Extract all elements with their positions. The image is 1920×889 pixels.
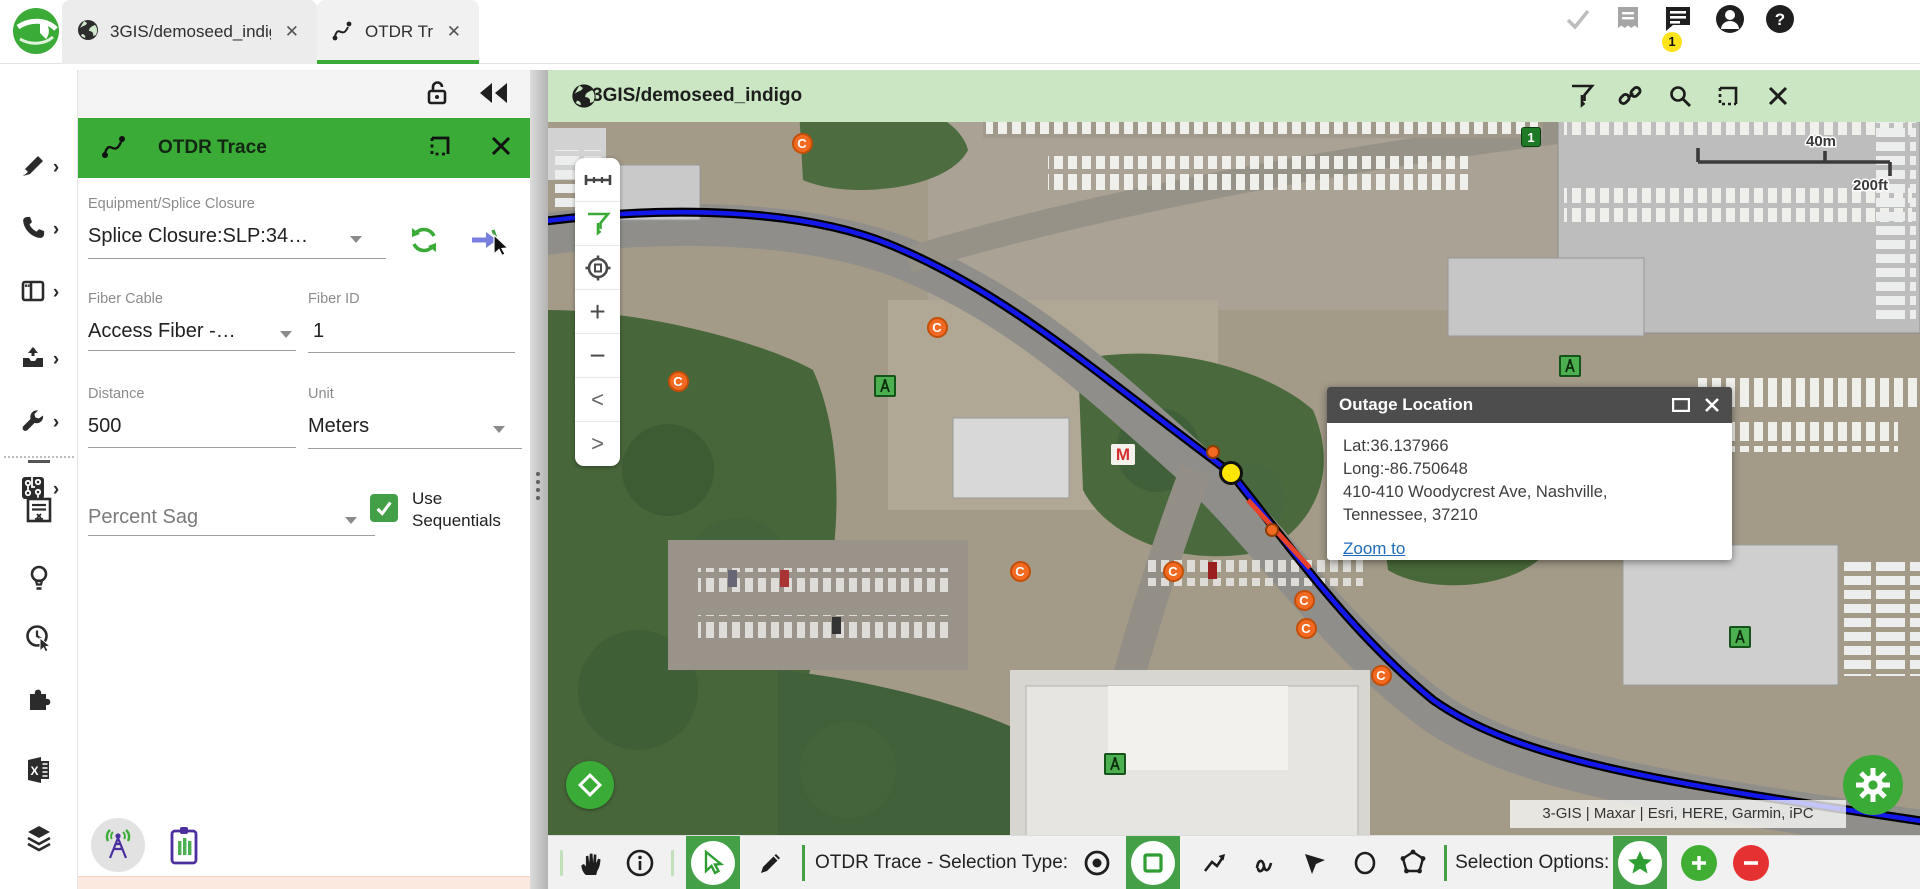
outage-location-popup: Outage Location Lat:36.137966 Long:-86.7… bbox=[1327, 387, 1732, 560]
layout-panel-icon bbox=[19, 277, 47, 310]
map-toolbar: OTDR Trace - Selection Type: bbox=[548, 835, 1920, 889]
detach-panel-icon[interactable] bbox=[426, 132, 454, 165]
field-underline bbox=[88, 258, 386, 259]
field-underline bbox=[88, 535, 375, 536]
clipboard-icon bbox=[166, 823, 202, 867]
chevron-right-icon: › bbox=[53, 349, 59, 371]
dropdown-arrow-icon[interactable] bbox=[345, 517, 357, 524]
rectangle-icon bbox=[1140, 850, 1166, 876]
fiber-cable-label: Fiber Cable bbox=[88, 291, 163, 307]
sidebar-scroll-indicator bbox=[28, 460, 50, 463]
sidebar-item-reports[interactable] bbox=[0, 490, 78, 534]
antenna-icon bbox=[98, 825, 138, 865]
device-marker[interactable] bbox=[1104, 753, 1126, 775]
app-logo-icon[interactable] bbox=[10, 5, 62, 57]
cursor-arrow-icon bbox=[700, 850, 726, 876]
pencil-icon bbox=[19, 152, 47, 185]
pan-tool-button[interactable] bbox=[575, 846, 609, 880]
scale-imperial-label: 200ft bbox=[1853, 177, 1888, 194]
toolbar-tick bbox=[560, 850, 563, 876]
panel-top-bar bbox=[78, 70, 530, 118]
scale-bar: 40m 200ft bbox=[1688, 132, 1908, 202]
polyline-icon bbox=[1201, 849, 1229, 877]
popup-lat: Lat:36.137966 bbox=[1343, 435, 1716, 458]
svg-text:?: ? bbox=[1775, 10, 1785, 29]
dropdown-arrow-icon[interactable] bbox=[350, 236, 362, 243]
panel-title: OTDR Trace bbox=[158, 137, 267, 159]
field-underline bbox=[88, 350, 296, 351]
selection-options-label: Selection Options: bbox=[1455, 852, 1609, 874]
tool-sidebar: › › › › › › bbox=[0, 70, 78, 889]
puzzle-icon bbox=[25, 686, 53, 719]
locate-button[interactable] bbox=[566, 761, 614, 809]
lasso-icon bbox=[1301, 849, 1329, 877]
receipt-log-icon[interactable] bbox=[1611, 2, 1645, 36]
selection-type-label: OTDR Trace - Selection Type: bbox=[815, 852, 1068, 874]
circle-selection-button[interactable] bbox=[1348, 846, 1382, 880]
panel-footer-strip bbox=[78, 876, 530, 889]
maximize-icon[interactable] bbox=[1672, 398, 1690, 412]
next-extent-button[interactable]: > bbox=[575, 422, 620, 466]
zoom-in-button[interactable]: + bbox=[575, 290, 620, 334]
clock-cursor-icon bbox=[24, 623, 54, 658]
use-sequentials-checkbox[interactable] bbox=[370, 494, 398, 522]
circle-icon bbox=[1351, 849, 1379, 877]
closure-marker[interactable]: C bbox=[1163, 561, 1184, 582]
closure-marker[interactable]: C bbox=[792, 133, 813, 154]
fiber-cable-select[interactable]: Access Fiber -… bbox=[88, 320, 236, 343]
map-view[interactable]: 40m 200ft CCCCCCCCM1 3GIS/demoseed_indig… bbox=[548, 70, 1920, 889]
popup-address-line1: 410-410 Woodycrest Ave, Nashville, bbox=[1343, 481, 1716, 504]
lasso-selection-button[interactable] bbox=[1298, 846, 1332, 880]
map-tool-column: + − < > bbox=[575, 158, 620, 466]
map-attribution: 3-GIS | Maxar | Esri, HERE, Garmin, iPC bbox=[1510, 800, 1846, 828]
excel-icon: X bbox=[24, 755, 54, 790]
antenna-tool-button[interactable] bbox=[91, 818, 145, 872]
globe-icon bbox=[570, 82, 598, 115]
popup-header[interactable]: Outage Location bbox=[1327, 387, 1732, 423]
sidebar-item-tools[interactable]: › bbox=[0, 401, 78, 445]
panel-header: OTDR Trace bbox=[78, 118, 530, 178]
device-marker[interactable] bbox=[1559, 355, 1581, 377]
close-panel-icon[interactable] bbox=[488, 133, 514, 164]
closure-marker[interactable]: C bbox=[1010, 561, 1031, 582]
monument-marker[interactable]: M bbox=[1111, 444, 1135, 465]
star-icon bbox=[1626, 849, 1654, 877]
globe-icon bbox=[76, 18, 100, 47]
sidebar-divider bbox=[4, 456, 74, 458]
closure-marker[interactable]: C bbox=[1296, 618, 1317, 639]
sidebar-item-export[interactable]: › bbox=[0, 338, 78, 382]
target-icon bbox=[577, 772, 603, 798]
sidebar-item-ideas[interactable] bbox=[0, 558, 78, 602]
upload-tray-icon bbox=[19, 344, 47, 377]
use-sequentials-label-line2: Sequentials bbox=[412, 511, 501, 531]
plus-icon bbox=[1689, 853, 1709, 873]
sidebar-item-plugins[interactable] bbox=[0, 680, 78, 724]
link-icon[interactable] bbox=[1614, 80, 1646, 112]
zoom-out-button[interactable]: − bbox=[575, 334, 620, 378]
tab-label: OTDR Trace bbox=[365, 22, 433, 42]
sidebar-item-layers[interactable] bbox=[0, 818, 78, 862]
detach-map-icon[interactable] bbox=[1712, 80, 1744, 112]
close-popup-icon[interactable] bbox=[1704, 397, 1720, 413]
device-marker[interactable] bbox=[1729, 626, 1751, 648]
map-settings-button[interactable] bbox=[1843, 755, 1903, 815]
fiber-point-marker[interactable] bbox=[1206, 445, 1220, 459]
top-bar: 3GIS/demoseed_indigo ✕ OTDR Trace ✕ 1 bbox=[0, 0, 1920, 70]
pencil-icon bbox=[757, 849, 785, 877]
close-map-icon[interactable] bbox=[1762, 80, 1794, 112]
otdr-trace-panel: OTDR Trace Equipment/Splice Closure Spli… bbox=[78, 70, 530, 889]
popup-address-line2: Tennessee, 37210 bbox=[1343, 504, 1716, 527]
sidebar-item-excel-export[interactable]: X bbox=[0, 750, 78, 794]
map-header: 3GIS/demoseed_indigo bbox=[548, 70, 1920, 122]
notification-badge: 1 bbox=[1662, 32, 1682, 52]
previous-extent-button[interactable]: < bbox=[575, 378, 620, 422]
unit-select[interactable]: Meters bbox=[308, 415, 369, 438]
distance-input[interactable]: 500 bbox=[88, 415, 121, 438]
fiber-id-input[interactable]: 1 bbox=[313, 320, 324, 343]
closure-marker[interactable]: C bbox=[927, 317, 948, 338]
radio-point-icon bbox=[1082, 848, 1112, 878]
report-document-icon bbox=[24, 495, 54, 530]
dropdown-arrow-icon[interactable] bbox=[493, 426, 505, 433]
map-title: 3GIS/demoseed_indigo bbox=[592, 85, 802, 107]
panel-splitter[interactable] bbox=[530, 70, 548, 889]
validate-check-icon[interactable] bbox=[1561, 2, 1595, 36]
chevron-right-icon: › bbox=[53, 157, 59, 179]
field-underline bbox=[308, 352, 515, 353]
info-icon bbox=[625, 848, 655, 878]
account-icon[interactable] bbox=[1713, 2, 1747, 36]
edit-tool-button[interactable] bbox=[754, 846, 788, 880]
rectangle-selection-button-active[interactable] bbox=[1126, 836, 1180, 889]
messages-icon[interactable] bbox=[1661, 2, 1695, 36]
chevron-right-icon: › bbox=[53, 412, 59, 434]
toolbar-tick bbox=[671, 850, 674, 876]
closure-marker[interactable]: C bbox=[1294, 590, 1315, 611]
lightbulb-icon bbox=[25, 564, 53, 597]
chevron-right-icon: › bbox=[53, 219, 59, 241]
sidebar-item-history[interactable] bbox=[0, 618, 78, 662]
point-selection-button[interactable] bbox=[1080, 846, 1114, 880]
refresh-icon[interactable] bbox=[406, 222, 442, 263]
tab-close-icon[interactable]: ✕ bbox=[281, 20, 303, 44]
measure-button[interactable] bbox=[575, 158, 620, 202]
scale-metric-label: 40m bbox=[1806, 133, 1836, 150]
splitter-handle[interactable] bbox=[536, 468, 540, 504]
sidebar-item-layout[interactable]: › bbox=[0, 271, 78, 315]
collapse-panel-icon[interactable] bbox=[478, 81, 510, 110]
use-sequentials-label-line1: Use bbox=[412, 489, 442, 509]
check-icon bbox=[373, 497, 395, 519]
map-filter-button[interactable] bbox=[575, 202, 620, 246]
sidebar-item-call[interactable]: › bbox=[0, 208, 78, 252]
gear-icon bbox=[1854, 766, 1892, 804]
closure-marker[interactable]: C bbox=[668, 371, 689, 392]
minus-icon bbox=[1741, 853, 1761, 873]
tab-map-view[interactable]: 3GIS/demoseed_indigo ✕ bbox=[62, 0, 317, 64]
equipment-select[interactable]: Splice Closure:SLP:34… bbox=[88, 225, 308, 248]
filter-icon[interactable] bbox=[1566, 80, 1598, 112]
svg-text:X: X bbox=[30, 764, 38, 778]
popup-long: Long:-86.750648 bbox=[1343, 458, 1716, 481]
add-to-selection-button[interactable] bbox=[1681, 845, 1717, 881]
polygon-icon bbox=[1398, 848, 1428, 878]
tab-otdr-trace[interactable]: OTDR Trace ✕ bbox=[317, 0, 479, 64]
hand-icon bbox=[578, 849, 606, 877]
count-marker[interactable]: 1 bbox=[1521, 127, 1541, 147]
freehand-selection-button[interactable] bbox=[1248, 846, 1282, 880]
tab-label: 3GIS/demoseed_indigo bbox=[110, 22, 271, 42]
polygon-selection-button[interactable] bbox=[1396, 846, 1430, 880]
polyline-selection-button[interactable] bbox=[1198, 846, 1232, 880]
freehand-icon bbox=[1251, 849, 1279, 877]
layers-icon bbox=[24, 823, 54, 858]
help-icon[interactable]: ? bbox=[1763, 2, 1797, 36]
selected-trace-point[interactable] bbox=[1219, 461, 1243, 485]
zoom-to-link[interactable]: Zoom to bbox=[1343, 537, 1405, 560]
cursor-icon bbox=[494, 235, 508, 256]
chevron-right-icon: › bbox=[53, 282, 59, 304]
application-window: 3GIS/demoseed_indigo ✕ OTDR Trace ✕ 1 bbox=[0, 0, 1920, 889]
dropdown-arrow-icon[interactable] bbox=[280, 331, 292, 338]
search-icon[interactable] bbox=[1664, 80, 1696, 112]
select-tool-button-active[interactable] bbox=[686, 836, 740, 889]
remove-from-selection-button[interactable] bbox=[1733, 845, 1769, 881]
device-marker[interactable] bbox=[874, 375, 896, 397]
select-from-map-icon[interactable] bbox=[470, 226, 514, 267]
default-extent-button[interactable] bbox=[575, 246, 620, 290]
otdr-trace-icon bbox=[100, 131, 130, 166]
fiber-id-label: Fiber ID bbox=[308, 291, 360, 307]
tab-close-icon[interactable]: ✕ bbox=[443, 20, 465, 44]
otdr-trace-icon bbox=[331, 18, 355, 47]
distance-label: Distance bbox=[88, 386, 144, 402]
field-underline bbox=[88, 447, 296, 448]
identify-tool-button[interactable] bbox=[623, 846, 657, 880]
field-underline bbox=[308, 448, 522, 449]
fiber-point-marker[interactable] bbox=[1265, 523, 1279, 537]
sidebar-item-edit[interactable]: › bbox=[0, 146, 78, 190]
popup-title: Outage Location bbox=[1339, 395, 1473, 415]
toolbar-divider bbox=[1444, 845, 1447, 881]
toolbar-divider bbox=[802, 845, 805, 881]
closure-marker[interactable]: C bbox=[1371, 665, 1392, 686]
new-selection-button-active[interactable] bbox=[1613, 836, 1667, 889]
percent-sag-select[interactable]: Percent Sag bbox=[88, 506, 198, 529]
test-results-button[interactable] bbox=[164, 822, 204, 868]
unlock-icon[interactable] bbox=[422, 78, 452, 113]
phone-icon bbox=[19, 214, 47, 247]
unit-label: Unit bbox=[308, 386, 334, 402]
equipment-label: Equipment/Splice Closure bbox=[88, 196, 255, 212]
wrench-icon bbox=[19, 407, 47, 440]
